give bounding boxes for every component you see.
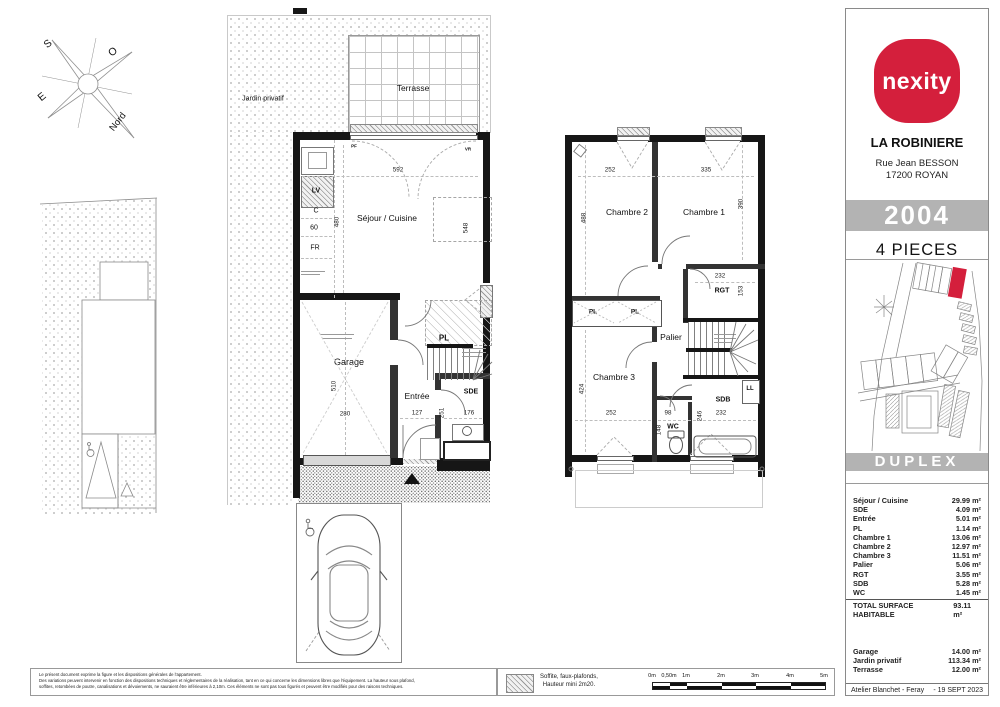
soffit-legend-swatch (506, 674, 534, 693)
table-row: SDB5.28 m² (846, 579, 988, 588)
bedroom3-label: Chambre 3 (593, 372, 635, 382)
nexity-logo: nexity (874, 39, 960, 123)
address-line1: Rue Jean BESSON (846, 158, 988, 169)
entry-label: Entrée (404, 391, 429, 401)
table-row: Chambre 311.51 m² (846, 551, 988, 560)
table-row: SDE4.09 m² (846, 505, 988, 514)
dimension: 148 (656, 425, 663, 436)
dimension: 176 (464, 410, 475, 417)
upper-closets (572, 300, 662, 327)
highlighted-unit (948, 267, 967, 299)
dimension: 548 (463, 223, 470, 234)
uf-closet2-label: PL (631, 309, 639, 316)
washer-box (742, 380, 760, 404)
table-row: Chambre 212.97 m² (846, 542, 988, 551)
unit-type: 4 PIECES (846, 241, 988, 260)
dimension: 127 (412, 410, 423, 417)
uf-closet1-label: PL (589, 309, 597, 316)
roof-outline (575, 470, 763, 508)
total-value: 93.11 m² (953, 601, 981, 619)
gravel-path (298, 466, 490, 503)
legend-text-line1: Soffite, faux-plafonds, (540, 673, 598, 681)
plan-type-badge: DUPLEX (846, 453, 988, 471)
parking-space (296, 503, 402, 663)
pf-label: PF (351, 144, 357, 149)
dimension: 232 (716, 410, 727, 417)
dimension: 251 (439, 408, 446, 419)
living-room-label: Séjour / Cuisine (357, 213, 417, 223)
dimension: 280 (340, 411, 351, 418)
sdb-label: SDB (716, 397, 731, 404)
dimension: 246 (697, 411, 704, 422)
legal-line: soffites, retombées de poutre, canalisat… (39, 684, 496, 690)
areas-table: Séjour / Cuisine29.99 m² SDE4.09 m² Entr… (846, 496, 988, 619)
gf-closet-label: PL (439, 334, 449, 343)
garden-label: Jardin privatif (242, 96, 284, 103)
sheet-date: - 19 SEPT 2023 (933, 687, 983, 694)
dimension: 390 (738, 199, 745, 210)
ll-label: LL (746, 386, 753, 392)
table-row: Garage14.00 m² (846, 647, 988, 656)
site-location-map (846, 261, 987, 453)
wc-label: WC (667, 424, 679, 431)
table-row: Palier5.06 m² (846, 560, 988, 569)
dimension: 153 (738, 286, 745, 297)
table-row: Séjour / Cuisine29.99 m² (846, 496, 988, 505)
landing-label: Palier (660, 332, 682, 342)
bedroom2-label: Chambre 2 (606, 207, 648, 217)
dimension: 480 (334, 217, 341, 228)
dimension: 252 (606, 410, 617, 417)
address-line2: 17200 ROYAN (846, 170, 988, 181)
dimension: 252 (605, 167, 616, 174)
kitchen-60-label: 60 (310, 225, 318, 232)
annex-areas: Garage14.00 m² Jardin privatif113.34 m² … (846, 647, 988, 675)
total-row: TOTAL SURFACE HABITABLE 93.11 m² (846, 599, 988, 619)
sheet-footer: Atelier Blanchet - Feray - 19 SEPT 2023 (846, 683, 988, 694)
rgt-label: RGT (715, 288, 730, 295)
vr-label: VR (465, 147, 471, 152)
dimension: 592 (393, 167, 404, 174)
unit-number-badge: 2004 (846, 200, 988, 231)
project-name: LA ROBINIERE (846, 135, 988, 150)
dimension: 335 (701, 167, 712, 174)
kitchen-c-label: C (313, 208, 318, 215)
dimension: 488 (581, 213, 588, 224)
dimension: 510 (331, 381, 338, 392)
entrance-marker-icon (404, 473, 420, 484)
table-row: Chambre 113.06 m² (846, 533, 988, 542)
dishwasher-label: LV (312, 188, 320, 195)
table-row: Terrasse12.00 m² (846, 665, 988, 674)
scale-bar: 0m 0,50m 1m 2m 3m 4m 5m (650, 673, 830, 693)
legal-notice: Le présent document exprime la figure et… (30, 668, 497, 696)
dimension: 424 (579, 384, 586, 395)
title-block: nexity LA ROBINIERE Rue Jean BESSON 1720… (845, 8, 989, 696)
total-label: TOTAL SURFACE HABITABLE (853, 601, 953, 619)
table-row: WC1.45 m² (846, 588, 988, 597)
dimension: 98 (664, 410, 671, 417)
table-row: Entrée5.01 m² (846, 514, 988, 523)
legend-text-line2: Hauteur mini 2m20. (540, 681, 598, 689)
dimension: 232 (715, 273, 726, 280)
table-row: PL1.14 m² (846, 524, 988, 533)
bedroom1-label: Chambre 1 (683, 207, 725, 217)
site-sketch (40, 195, 158, 518)
table-row: Jardin privatif113.34 m² (846, 656, 988, 665)
architect-name: Atelier Blanchet - Feray (851, 687, 924, 694)
sde-label: SDE (464, 389, 478, 396)
terrace-label: Terrasse (397, 83, 430, 93)
garage-label: Garage (334, 357, 364, 367)
table-row: RGT3.55 m² (846, 570, 988, 579)
floor-plan-sheet: S O E Nord Jardin privatif (0, 0, 1000, 707)
fridge-label: FR (310, 245, 319, 252)
legend-and-scale: Soffite, faux-plafonds, Hauteur mini 2m2… (497, 668, 835, 696)
